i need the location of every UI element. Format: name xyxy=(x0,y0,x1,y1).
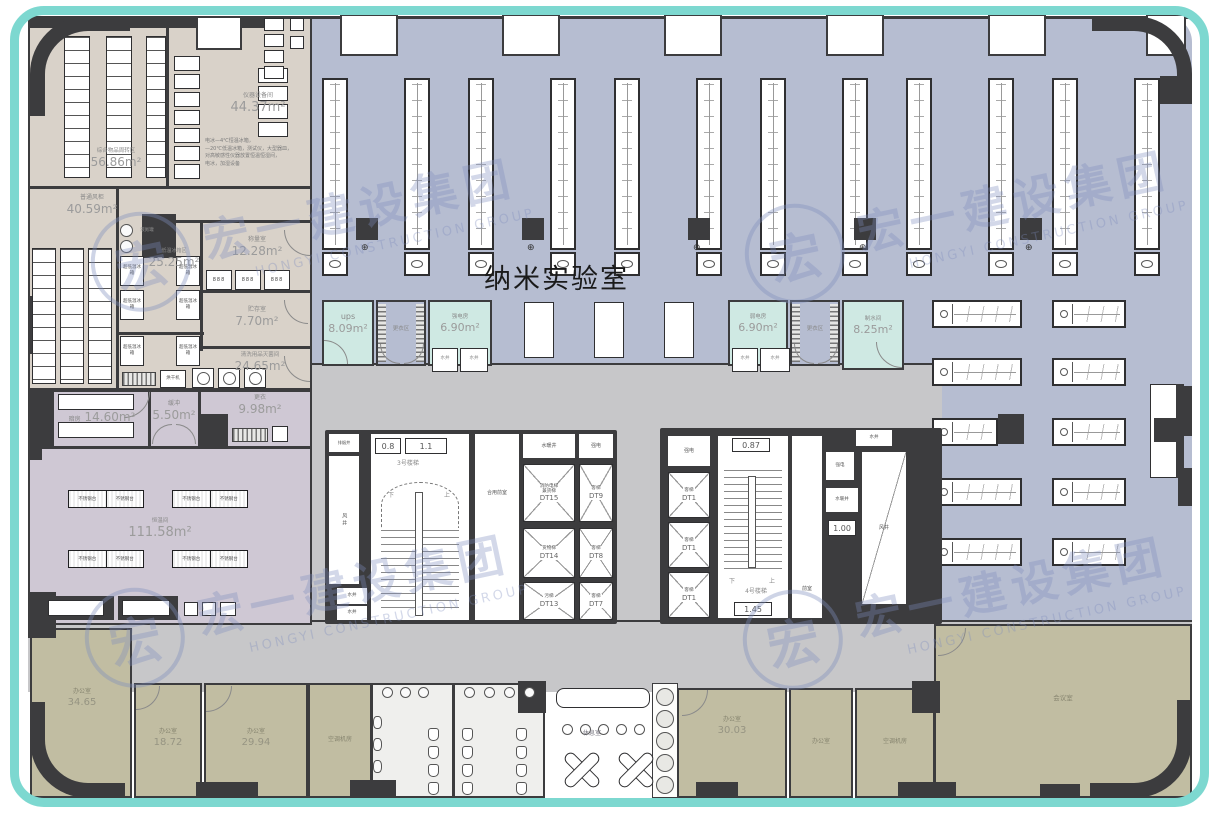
cabinet xyxy=(264,34,284,47)
elevator-dt15: 消防电梯兼货梯DT15 xyxy=(523,464,575,522)
room-label-storage: 贮存室 7.70m² xyxy=(222,306,292,329)
toilet xyxy=(428,782,439,795)
counter xyxy=(556,688,650,708)
eyewash-icon: ⊕ xyxy=(527,244,535,253)
plant xyxy=(656,732,674,750)
stair-rail xyxy=(415,492,423,616)
equipment-bench xyxy=(1052,418,1126,446)
sink xyxy=(484,687,495,698)
air-shaft: 风井 xyxy=(329,456,359,584)
cabinet xyxy=(48,600,104,616)
toilet xyxy=(516,746,527,759)
bench-unit xyxy=(1056,542,1073,562)
eyewash-icon: ⊕ xyxy=(1025,244,1033,253)
cabinet xyxy=(174,128,200,143)
elevator-dt14: 货物梯DT14 xyxy=(523,528,575,578)
cabinet xyxy=(258,122,288,137)
water-well: 水井 xyxy=(856,430,892,446)
office-label-small: 办公室 xyxy=(800,738,842,746)
core-right: 强电 客梯DT1 客梯DT1 客梯DT1 0.87 下 上 4号楼梯 1.45 … xyxy=(660,428,942,624)
stair-down: 下 xyxy=(726,578,738,586)
bench-unit xyxy=(936,362,953,382)
toilet xyxy=(462,746,473,759)
cabinet xyxy=(174,164,200,179)
sink xyxy=(464,687,475,698)
stainless-bench: 不锈钢台不锈钢台 xyxy=(68,490,144,508)
stair-up: 上 xyxy=(766,578,778,586)
hvac-label-right: 空调机房 xyxy=(862,738,928,746)
window-bay xyxy=(988,14,1046,56)
cabinet xyxy=(174,92,200,107)
elevator-dt13: 污梯DT13 xyxy=(523,582,575,620)
equipment-bench xyxy=(932,358,1022,386)
bench-sink xyxy=(906,252,932,276)
cabinet-dark xyxy=(198,414,228,446)
lab-bench xyxy=(404,78,430,250)
lab-bench xyxy=(88,248,112,384)
stair-rail xyxy=(748,476,756,568)
elevator-dt9: 客梯DT9 xyxy=(579,464,613,522)
stainless-bench: 不锈钢台不锈钢台 xyxy=(68,550,144,568)
stair-label: 4号楼梯 xyxy=(732,588,780,596)
water-well: 水井 xyxy=(337,606,367,620)
cabinet xyxy=(174,56,200,71)
equipment-bench xyxy=(932,300,1022,328)
room-label-changing: 更衣 9.98m² xyxy=(228,394,292,417)
eyewash-icon: ⊕ xyxy=(693,244,701,253)
urinal xyxy=(373,716,382,729)
window-bay xyxy=(196,16,242,50)
balance-table: 888 xyxy=(235,270,261,290)
shelf xyxy=(232,428,268,442)
eyewash-icon: ⊕ xyxy=(859,244,867,253)
room-label-strong-elec: 强电房 6.90m² xyxy=(428,314,492,335)
wall xyxy=(116,332,204,335)
equipment-bench xyxy=(1052,300,1126,328)
urinal xyxy=(373,738,382,751)
plant xyxy=(656,776,674,794)
nitrogen-tank xyxy=(120,224,133,237)
column xyxy=(1040,784,1080,800)
stair-up: 上 xyxy=(441,492,453,500)
balance-table: 888 xyxy=(206,270,232,290)
stool xyxy=(616,724,627,735)
strong-elec-shaft: 强电 xyxy=(579,434,613,458)
column xyxy=(350,780,396,800)
bench-unit xyxy=(1056,422,1073,442)
cabinet xyxy=(264,18,284,31)
fixture xyxy=(202,602,216,616)
office-label-30: 办公室30.03 xyxy=(700,716,764,737)
stainless-bench: 不锈钢台不锈钢台 xyxy=(172,490,248,508)
elevator-dt7: 客梯DT7 xyxy=(579,582,613,620)
lobby: 前室 xyxy=(792,436,822,618)
cabinet xyxy=(290,18,304,31)
lab-bench xyxy=(988,78,1014,250)
break-table xyxy=(614,748,658,792)
plant xyxy=(656,754,674,772)
room-label-changing-right: 更衣区 xyxy=(790,326,840,333)
window-bay xyxy=(340,14,398,56)
freezer-unit: 超低温冰箱 xyxy=(120,336,144,366)
wall xyxy=(452,683,455,798)
smoke-shaft: 排烟井 xyxy=(329,434,359,452)
stair-down: 下 xyxy=(385,492,397,500)
equipment-bench xyxy=(1052,538,1126,566)
room-label-darkroom: 暗房 14.60m² xyxy=(60,410,144,426)
toilet xyxy=(516,782,527,795)
toilet xyxy=(462,764,473,777)
cabinet-dark xyxy=(30,392,54,446)
shelf xyxy=(272,426,288,442)
cabinet xyxy=(264,66,284,79)
equipment xyxy=(664,302,694,358)
cabinet xyxy=(174,146,200,161)
lab-bench xyxy=(468,78,494,250)
window-bay xyxy=(664,14,722,56)
lab-bench xyxy=(322,78,348,250)
bench-unit xyxy=(1056,362,1073,382)
wall xyxy=(202,290,312,293)
nitrogen-tank xyxy=(120,240,133,253)
window-bay xyxy=(502,14,560,56)
column xyxy=(696,782,738,800)
lab-bench xyxy=(760,78,786,250)
equipment-bench xyxy=(932,538,1022,566)
cabinet xyxy=(174,110,200,125)
instrument-notes: 电冰—4℃恒温冰箱， —20℃低温冰箱，测试仪，大型器皿， 对高敏感性仪器放置恒… xyxy=(205,138,309,168)
fixture xyxy=(184,602,198,616)
sink xyxy=(418,687,429,698)
room-label-buffer: 缓冲 5.50m² xyxy=(150,400,198,423)
bench-sink xyxy=(322,252,348,276)
bench-unit xyxy=(1056,482,1073,502)
dim-box: 0.87 xyxy=(732,438,770,452)
nitrogen-label: 液氮罐 xyxy=(134,228,160,234)
wall xyxy=(28,446,312,449)
room-label-instrument: 仪器设备间 44.37m² xyxy=(212,92,304,117)
bench-sink xyxy=(1052,252,1078,276)
break-label: 休息室 xyxy=(568,730,616,738)
strong-elec-shaft: 强电 xyxy=(668,436,710,466)
column xyxy=(196,782,258,800)
lab-bench xyxy=(60,248,84,384)
wall xyxy=(28,186,312,189)
bench-sink xyxy=(696,252,722,276)
break-table xyxy=(560,748,604,792)
well-label: 水井 xyxy=(460,356,488,362)
room-label-ups: ups 8.09m² xyxy=(322,312,374,337)
room-label-washing: 清洗用品灭菌间 24.65m² xyxy=(210,352,310,375)
dryer: 烘干机 xyxy=(160,370,186,388)
freezer-unit: 超低温冰箱 xyxy=(120,256,144,286)
air-shaft: 风井 xyxy=(862,452,906,604)
toilet xyxy=(462,782,473,795)
stair-label: 3号楼梯 xyxy=(397,460,457,468)
wall-fixture-dark xyxy=(1154,418,1178,442)
sink xyxy=(504,687,515,698)
lab-bench xyxy=(550,78,576,250)
water-well: 水井 xyxy=(337,588,367,604)
room-label-changing-left: 更衣区 xyxy=(376,326,426,333)
bench-sink xyxy=(404,252,430,276)
equipment xyxy=(524,302,554,358)
room-label-consttemp: 恒温间 111.58m² xyxy=(118,518,202,542)
plant xyxy=(656,710,674,728)
stainless-bench: 不锈钢台不锈钢台 xyxy=(172,550,248,568)
dim-box: 0.8 xyxy=(375,438,401,454)
toilet xyxy=(462,728,473,741)
cabinet xyxy=(174,74,200,89)
equipment-bench xyxy=(1052,358,1126,386)
equipment xyxy=(594,302,624,358)
lab-bench xyxy=(906,78,932,250)
wall xyxy=(202,346,312,349)
shared-lobby: 合用前室 xyxy=(475,434,519,620)
hvac-label-left: 空调机房 xyxy=(312,736,368,744)
plumbing-shaft: 水暖井 xyxy=(826,488,858,512)
plumbing-shaft: 水暖井 xyxy=(523,434,575,458)
dim-box: 1.1 xyxy=(405,438,447,454)
dim-box: 1.45 xyxy=(734,602,772,616)
room-label-freezer: 低温冰箱区 25.25m² xyxy=(144,248,204,270)
dim-box: 1.00 xyxy=(828,520,856,536)
column xyxy=(356,218,378,240)
elevator-dt1: 客梯DT1 xyxy=(668,522,710,568)
bench xyxy=(58,394,134,410)
plan-title: 纳米实验室 xyxy=(484,257,629,296)
bench-sink xyxy=(842,252,868,276)
well-label: 水井 xyxy=(760,356,790,362)
plant xyxy=(656,688,674,706)
freezer-unit: 超低温冰箱 xyxy=(176,336,200,366)
bench-unit xyxy=(936,304,953,324)
urinal xyxy=(373,760,382,773)
bench-sink xyxy=(760,252,786,276)
counter xyxy=(122,372,156,386)
column xyxy=(522,218,544,240)
bench-sink xyxy=(988,252,1014,276)
room-label-ordinary: 普通风柜 40.59m² xyxy=(44,194,140,217)
equipment-dark xyxy=(998,414,1024,444)
room-label-turnover: 综合物品周转区 56.86m² xyxy=(62,148,170,171)
bench-sink xyxy=(1134,252,1160,276)
equipment-bench xyxy=(1052,478,1126,506)
strong-elec-small: 强电 xyxy=(826,452,854,480)
stool xyxy=(634,724,645,735)
office-label-29: 办公室29.94 xyxy=(222,728,290,749)
column xyxy=(912,681,940,713)
elevator-dt1: 客梯DT1 xyxy=(668,572,710,618)
sink xyxy=(524,687,535,698)
freezer-unit: 超低温冰箱 xyxy=(176,290,200,320)
office-label-18: 办公室18.72 xyxy=(140,728,196,749)
toilet xyxy=(428,764,439,777)
lab-bench xyxy=(1052,78,1078,250)
well-label: 水井 xyxy=(432,356,458,362)
room-label-weighing: 称量室 12.28m² xyxy=(222,236,292,259)
window-bay xyxy=(826,14,884,56)
elevator-dt8: 客梯DT8 xyxy=(579,528,613,578)
elevator-dt1: 客梯DT1 xyxy=(668,472,710,518)
toilet xyxy=(428,728,439,741)
well-label: 水井 xyxy=(732,356,758,362)
lab-bench xyxy=(32,248,56,384)
balance-table: 888 xyxy=(264,270,290,290)
room-label-water-making: 制水间 8.25m² xyxy=(842,316,904,337)
sink xyxy=(400,687,411,698)
column xyxy=(1020,218,1042,240)
column xyxy=(898,782,956,800)
toilet xyxy=(516,764,527,777)
meeting-label: 会议室 xyxy=(1036,694,1090,702)
sink xyxy=(382,687,393,698)
lab-bench xyxy=(614,78,640,250)
fixture xyxy=(220,602,236,616)
floor-plan: 综合物品周转区 56.86m² 仪器设备间 44.37m² 电冰—4℃恒温冰箱，… xyxy=(0,0,1219,815)
room-label-weak-elec: 弱电房 6.90m² xyxy=(728,314,788,335)
column xyxy=(854,218,876,240)
cabinet xyxy=(264,50,284,63)
toilet xyxy=(516,728,527,741)
cabinet xyxy=(122,600,170,616)
eyewash-icon: ⊕ xyxy=(361,244,369,253)
freezer-unit: 超低温冰箱 xyxy=(120,290,144,320)
bench-unit xyxy=(1056,304,1073,324)
equipment-bench xyxy=(932,478,1022,506)
cabinet xyxy=(290,36,304,49)
toilet xyxy=(428,746,439,759)
column xyxy=(688,218,710,240)
core-left: 排烟井 风井 水井 水井 0.8 1.1 3号楼梯 下 上 合用前室 水暖井 强… xyxy=(325,430,617,624)
